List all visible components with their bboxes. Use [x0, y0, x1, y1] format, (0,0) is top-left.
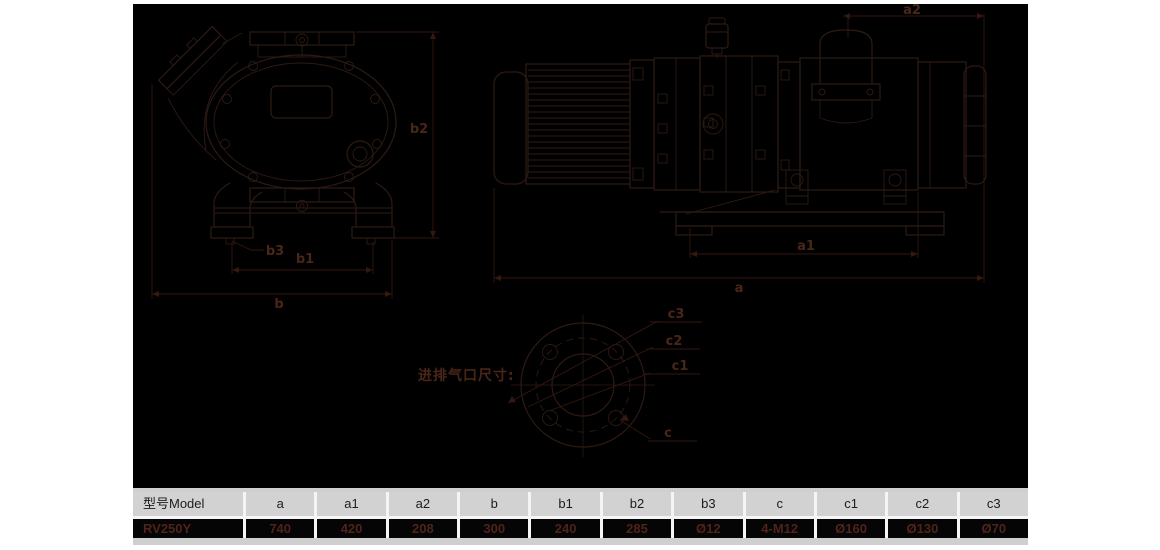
- drawing-canvas: b2 b1 b3 b: [133, 4, 1028, 545]
- dim-label-a: a: [735, 281, 744, 292]
- model-value: RV250Y: [133, 519, 243, 538]
- angled-inlet-flange: [155, 23, 242, 160]
- dim-label-a2: a2: [903, 4, 921, 18]
- col-header-c1: c1: [817, 492, 885, 516]
- col-header-b3: b3: [674, 492, 742, 516]
- end-cover: [918, 62, 986, 188]
- value-c1: Ø160: [817, 519, 885, 538]
- motor-fins: [528, 70, 630, 178]
- name-plate: [271, 86, 332, 118]
- value-a2: 208: [389, 519, 457, 538]
- col-header-b1: b1: [531, 492, 599, 516]
- value-b2: 285: [603, 519, 671, 538]
- dim-label-b3: b3: [266, 244, 284, 259]
- side-view-drawing: a2 a1 a: [485, 4, 990, 292]
- dim-label-b: b: [274, 297, 283, 312]
- casing-bolts: [221, 62, 382, 182]
- col-header-model: 型号Model: [133, 492, 243, 516]
- dimension-table: 型号Model a a1 a2 b b1 b2 b3 c c1 c2 c3 RV…: [133, 488, 1028, 545]
- dim-label-c: c: [664, 426, 672, 441]
- value-b3: Ø12: [674, 519, 742, 538]
- col-header-a1: a1: [317, 492, 385, 516]
- gearbox: [654, 56, 800, 192]
- value-b1: 240: [531, 519, 599, 538]
- value-b: 300: [460, 519, 528, 538]
- value-c3: Ø70: [960, 519, 1028, 538]
- dim-label-b1: b1: [296, 252, 314, 267]
- front-view-drawing: b2 b1 b3 b: [140, 20, 440, 315]
- flange-caption: 进排气口尺寸:: [418, 367, 515, 384]
- dim-label-b2: b2: [410, 122, 428, 137]
- col-header-a: a: [246, 492, 314, 516]
- col-header-c3: c3: [960, 492, 1028, 516]
- col-header-c2: c2: [888, 492, 956, 516]
- eyebolt: [296, 34, 308, 46]
- top-flange: [250, 32, 354, 57]
- value-a: 740: [246, 519, 314, 538]
- value-a1: 420: [317, 519, 385, 538]
- port-flange: [511, 315, 655, 457]
- dim-label-a1: a1: [797, 239, 815, 254]
- pump-casing: [206, 55, 396, 189]
- table-header-row: 型号Model a a1 a2 b b1 b2 b3 c c1 c2 c3: [133, 492, 1028, 519]
- oil-sight-port: [347, 141, 373, 167]
- right-foot: [352, 227, 394, 238]
- col-header-a2: a2: [389, 492, 457, 516]
- col-header-b2: b2: [603, 492, 671, 516]
- dim-label-c1: c1: [672, 359, 689, 374]
- bottom-flange-and-feet: [211, 183, 394, 244]
- base-frame: [660, 190, 944, 235]
- flange-view-drawing: 进排气口尺寸: c3 c2 c1 c: [405, 295, 715, 470]
- table-data-row: RV250Y 740 420 208 300 240 285 Ø12 4-M12…: [133, 519, 1028, 538]
- value-c: 4-M12: [746, 519, 814, 538]
- oil-cup: [706, 18, 728, 58]
- inlet-cylinder: [820, 30, 872, 84]
- pump-body: [786, 30, 918, 204]
- page: { "colors": { "page_bg": "#ffffff", "sta…: [0, 0, 1160, 550]
- dim-label-c2: c2: [666, 334, 683, 349]
- value-c2: Ø130: [888, 519, 956, 538]
- col-header-c: c: [746, 492, 814, 516]
- motor: [494, 60, 654, 188]
- col-header-b: b: [460, 492, 528, 516]
- dim-label-c3: c3: [668, 307, 685, 322]
- left-foot: [211, 227, 253, 238]
